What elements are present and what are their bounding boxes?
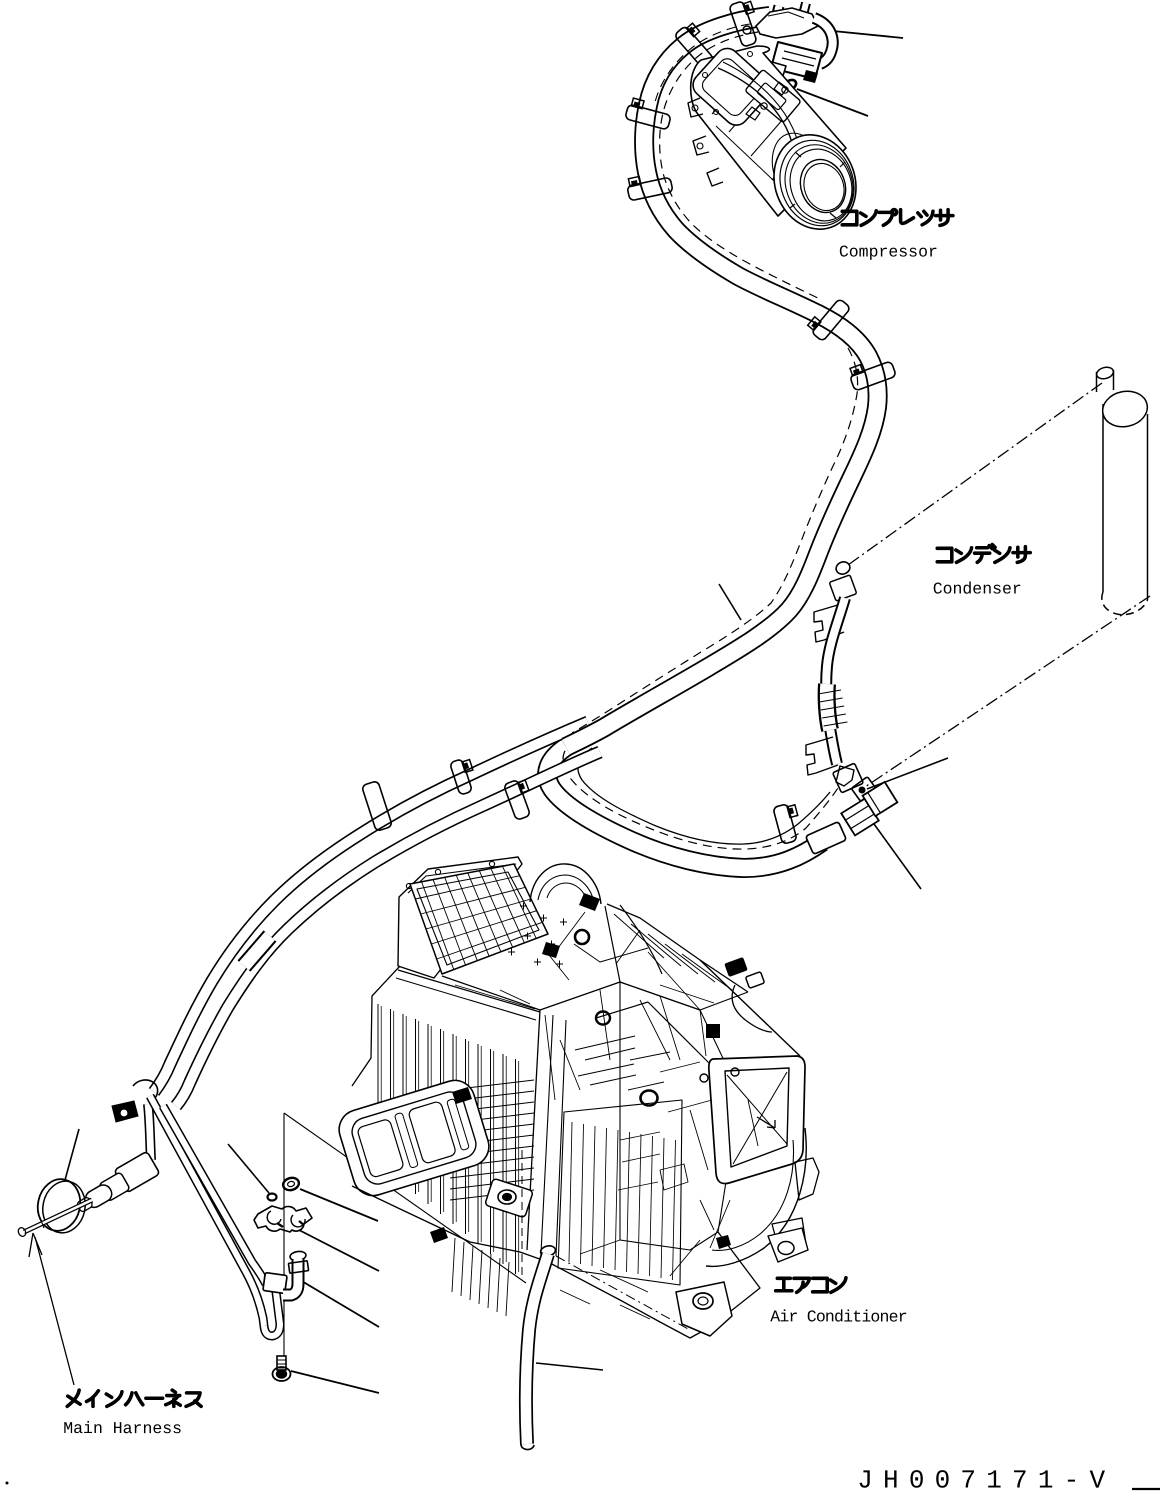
- svg-text:Air Conditioner: Air Conditioner: [770, 1307, 907, 1326]
- svg-text:Condenser: Condenser: [933, 579, 1022, 598]
- svg-text:Compressor: Compressor: [839, 242, 938, 261]
- svg-text:JH007171-V: JH007171-V: [857, 1465, 1115, 1491]
- svg-text:Main Harness: Main Harness: [63, 1419, 182, 1438]
